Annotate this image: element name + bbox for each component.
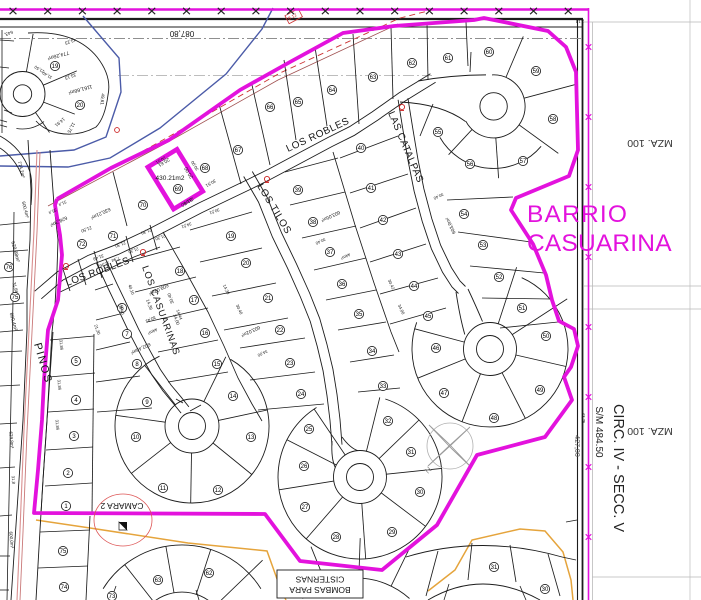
svg-text:10: 10: [133, 435, 140, 441]
svg-text:44: 44: [411, 284, 418, 290]
svg-text:57: 57: [520, 159, 527, 165]
svg-text:15: 15: [214, 362, 221, 368]
svg-text:49,61: 49,61: [99, 93, 105, 105]
svg-text:32: 32: [385, 419, 392, 425]
svg-text:31,86: 31,86: [55, 419, 61, 431]
svg-text:14: 14: [230, 394, 237, 400]
svg-text:40: 40: [358, 146, 365, 152]
svg-text:25: 25: [306, 427, 313, 433]
svg-text:71: 71: [110, 234, 117, 240]
svg-text:49: 49: [537, 388, 544, 394]
svg-text:65: 65: [295, 100, 302, 106]
svg-text:28: 28: [333, 535, 340, 541]
svg-text:74: 74: [61, 585, 68, 591]
svg-text:47: 47: [441, 391, 448, 397]
svg-text:72: 72: [79, 242, 86, 248]
svg-text:17: 17: [191, 298, 198, 304]
svg-text:46: 46: [433, 346, 440, 352]
svg-text:CIRC. IV - SECC. V: CIRC. IV - SECC. V: [610, 404, 626, 532]
svg-text:31: 31: [491, 565, 498, 571]
svg-text:75: 75: [12, 295, 19, 301]
svg-text:39: 39: [295, 188, 302, 194]
svg-text:76: 76: [6, 265, 13, 271]
svg-text:69: 69: [175, 187, 182, 193]
svg-text:19: 19: [52, 64, 59, 70]
svg-text:45: 45: [425, 314, 432, 320]
svg-text:26: 26: [301, 464, 308, 470]
svg-text:50: 50: [543, 334, 550, 340]
svg-text:63: 63: [155, 578, 162, 584]
svg-text:31,86: 31,86: [59, 339, 65, 351]
svg-text:35: 35: [356, 312, 363, 318]
svg-text:64: 64: [329, 88, 336, 94]
svg-text:66: 66: [267, 105, 274, 111]
svg-text:31,86: 31,86: [57, 379, 63, 391]
svg-text:68: 68: [202, 166, 209, 172]
svg-text:29: 29: [389, 530, 396, 536]
svg-text:1,18: 1,18: [575, 19, 584, 24]
svg-text:70: 70: [140, 203, 147, 209]
svg-text:20: 20: [243, 261, 250, 267]
svg-text:31: 31: [408, 450, 415, 456]
svg-text:11: 11: [160, 486, 167, 492]
svg-text:CAMARA 2: CAMARA 2: [100, 501, 143, 511]
svg-text:CASUARINA: CASUARINA: [527, 230, 672, 257]
svg-text:73: 73: [109, 594, 116, 600]
svg-text:41: 41: [368, 186, 375, 192]
svg-text:427,00: 427,00: [573, 435, 580, 457]
svg-text:60: 60: [486, 50, 493, 56]
svg-text:18: 18: [177, 269, 184, 275]
svg-text:67: 67: [235, 148, 242, 154]
svg-text:CISTERNAS: CISTERNAS: [295, 575, 344, 585]
svg-text:43: 43: [395, 252, 402, 258]
svg-text:13: 13: [248, 435, 255, 441]
svg-text:52: 52: [496, 275, 503, 281]
svg-text:S/M 484.50: S/M 484.50: [593, 406, 604, 458]
svg-text:30: 30: [542, 587, 549, 593]
svg-text:24: 24: [298, 392, 305, 398]
svg-text:16: 16: [202, 331, 209, 337]
svg-text:61: 61: [445, 56, 452, 62]
svg-text:31,8: 31,8: [11, 476, 17, 485]
svg-text:12: 12: [215, 488, 222, 494]
svg-text:37: 37: [327, 250, 334, 256]
svg-text:MZA. 100: MZA. 100: [627, 425, 673, 437]
svg-text:33: 33: [380, 384, 387, 390]
svg-text:55: 55: [435, 130, 442, 136]
svg-text:56: 56: [467, 162, 474, 168]
svg-text:BOMBAS PARA: BOMBAS PARA: [289, 585, 351, 595]
svg-text:62: 62: [409, 61, 416, 67]
svg-text:BARRIO: BARRIO: [527, 201, 628, 228]
svg-text:21: 21: [265, 296, 272, 302]
svg-text:62: 62: [206, 571, 213, 577]
svg-text:48: 48: [491, 416, 498, 422]
svg-text:27: 27: [302, 505, 309, 511]
svg-text:42: 42: [380, 218, 387, 224]
svg-text:36: 36: [339, 282, 346, 288]
svg-text:34: 34: [369, 349, 376, 355]
svg-text:087,80: 087,80: [169, 29, 194, 38]
svg-text:19: 19: [228, 234, 235, 240]
svg-text:75: 75: [60, 549, 67, 555]
svg-text:43,75: 43,75: [581, 413, 586, 424]
svg-text:MZA. 100: MZA. 100: [627, 137, 673, 149]
svg-text:54: 54: [461, 212, 468, 218]
svg-text:430.21m2: 430.21m2: [156, 175, 185, 182]
svg-text:38: 38: [310, 220, 317, 226]
svg-text:22: 22: [277, 328, 284, 334]
svg-text:23: 23: [287, 361, 294, 367]
svg-text:20: 20: [77, 103, 84, 109]
svg-text:59: 59: [533, 69, 540, 75]
svg-text:63: 63: [370, 75, 377, 81]
svg-text:30: 30: [417, 490, 424, 496]
svg-text:58: 58: [550, 117, 557, 123]
svg-text:53: 53: [480, 243, 487, 249]
svg-text:51: 51: [519, 306, 526, 312]
